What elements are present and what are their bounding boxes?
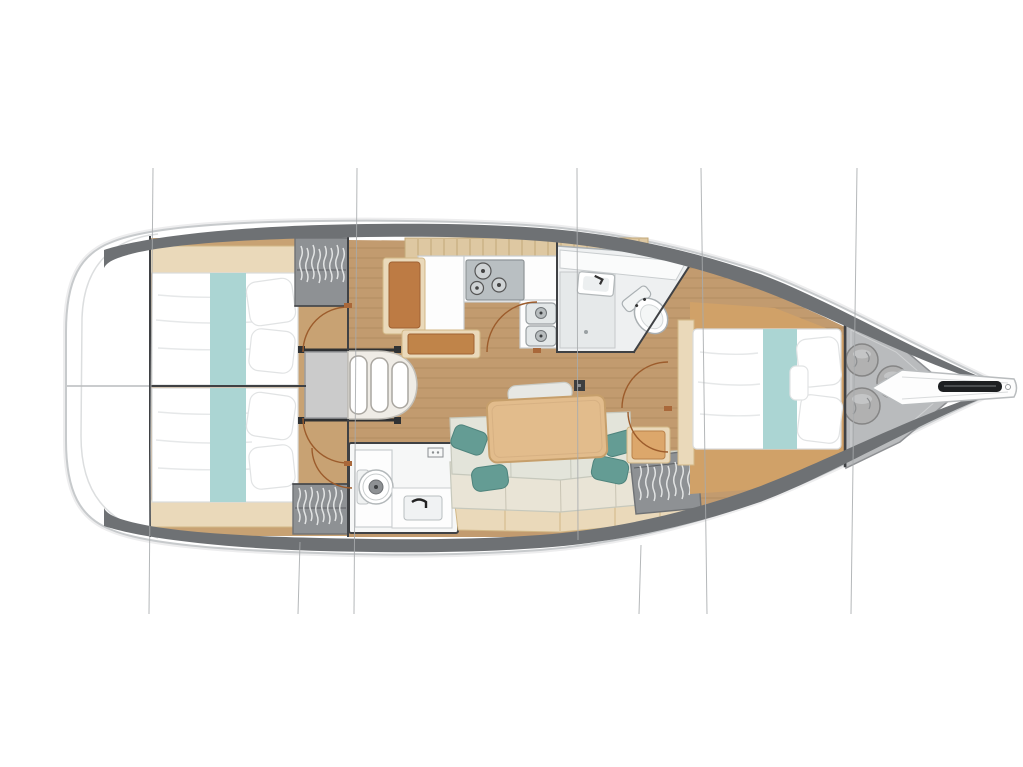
sail-bag bbox=[846, 344, 878, 376]
head-sink bbox=[577, 271, 615, 296]
step bbox=[350, 356, 367, 414]
floor-plan-canvas bbox=[0, 0, 1023, 767]
pillow bbox=[248, 328, 296, 374]
aft-head-sink bbox=[392, 488, 452, 528]
companionway-platform bbox=[305, 352, 348, 418]
hanging-locker-aft-bottom bbox=[293, 484, 348, 534]
forward-berth bbox=[693, 329, 844, 449]
stove bbox=[466, 260, 524, 300]
aft-cabin-starboard-berth bbox=[152, 388, 298, 502]
mast-post bbox=[574, 380, 585, 391]
pillow bbox=[790, 366, 808, 400]
floor-plan-drawing bbox=[0, 0, 1023, 767]
sail-bag bbox=[844, 388, 880, 424]
step bbox=[371, 358, 388, 412]
teal-runner bbox=[210, 273, 246, 385]
teal-cushion bbox=[471, 464, 510, 493]
hanging-locker-aft-top bbox=[295, 238, 348, 306]
teal-runner bbox=[210, 388, 246, 502]
pillow bbox=[245, 277, 297, 327]
galley-sink bbox=[526, 303, 556, 346]
aft-cabin-port-berth bbox=[152, 273, 298, 385]
nav-seat-cushion bbox=[389, 262, 420, 328]
pillow bbox=[796, 394, 843, 445]
companionway-steps bbox=[298, 346, 417, 424]
toilet bbox=[357, 470, 393, 504]
bow-shackle bbox=[1006, 385, 1011, 390]
berth-side-step bbox=[678, 320, 694, 465]
aft-head bbox=[349, 443, 458, 533]
pillow bbox=[245, 391, 297, 441]
chart-table-top bbox=[408, 334, 474, 354]
step bbox=[392, 362, 408, 408]
pillow bbox=[248, 444, 296, 490]
forward-seat-cushion bbox=[632, 431, 665, 459]
salon-table bbox=[487, 395, 608, 463]
bow-anchor-roller bbox=[872, 370, 1017, 405]
